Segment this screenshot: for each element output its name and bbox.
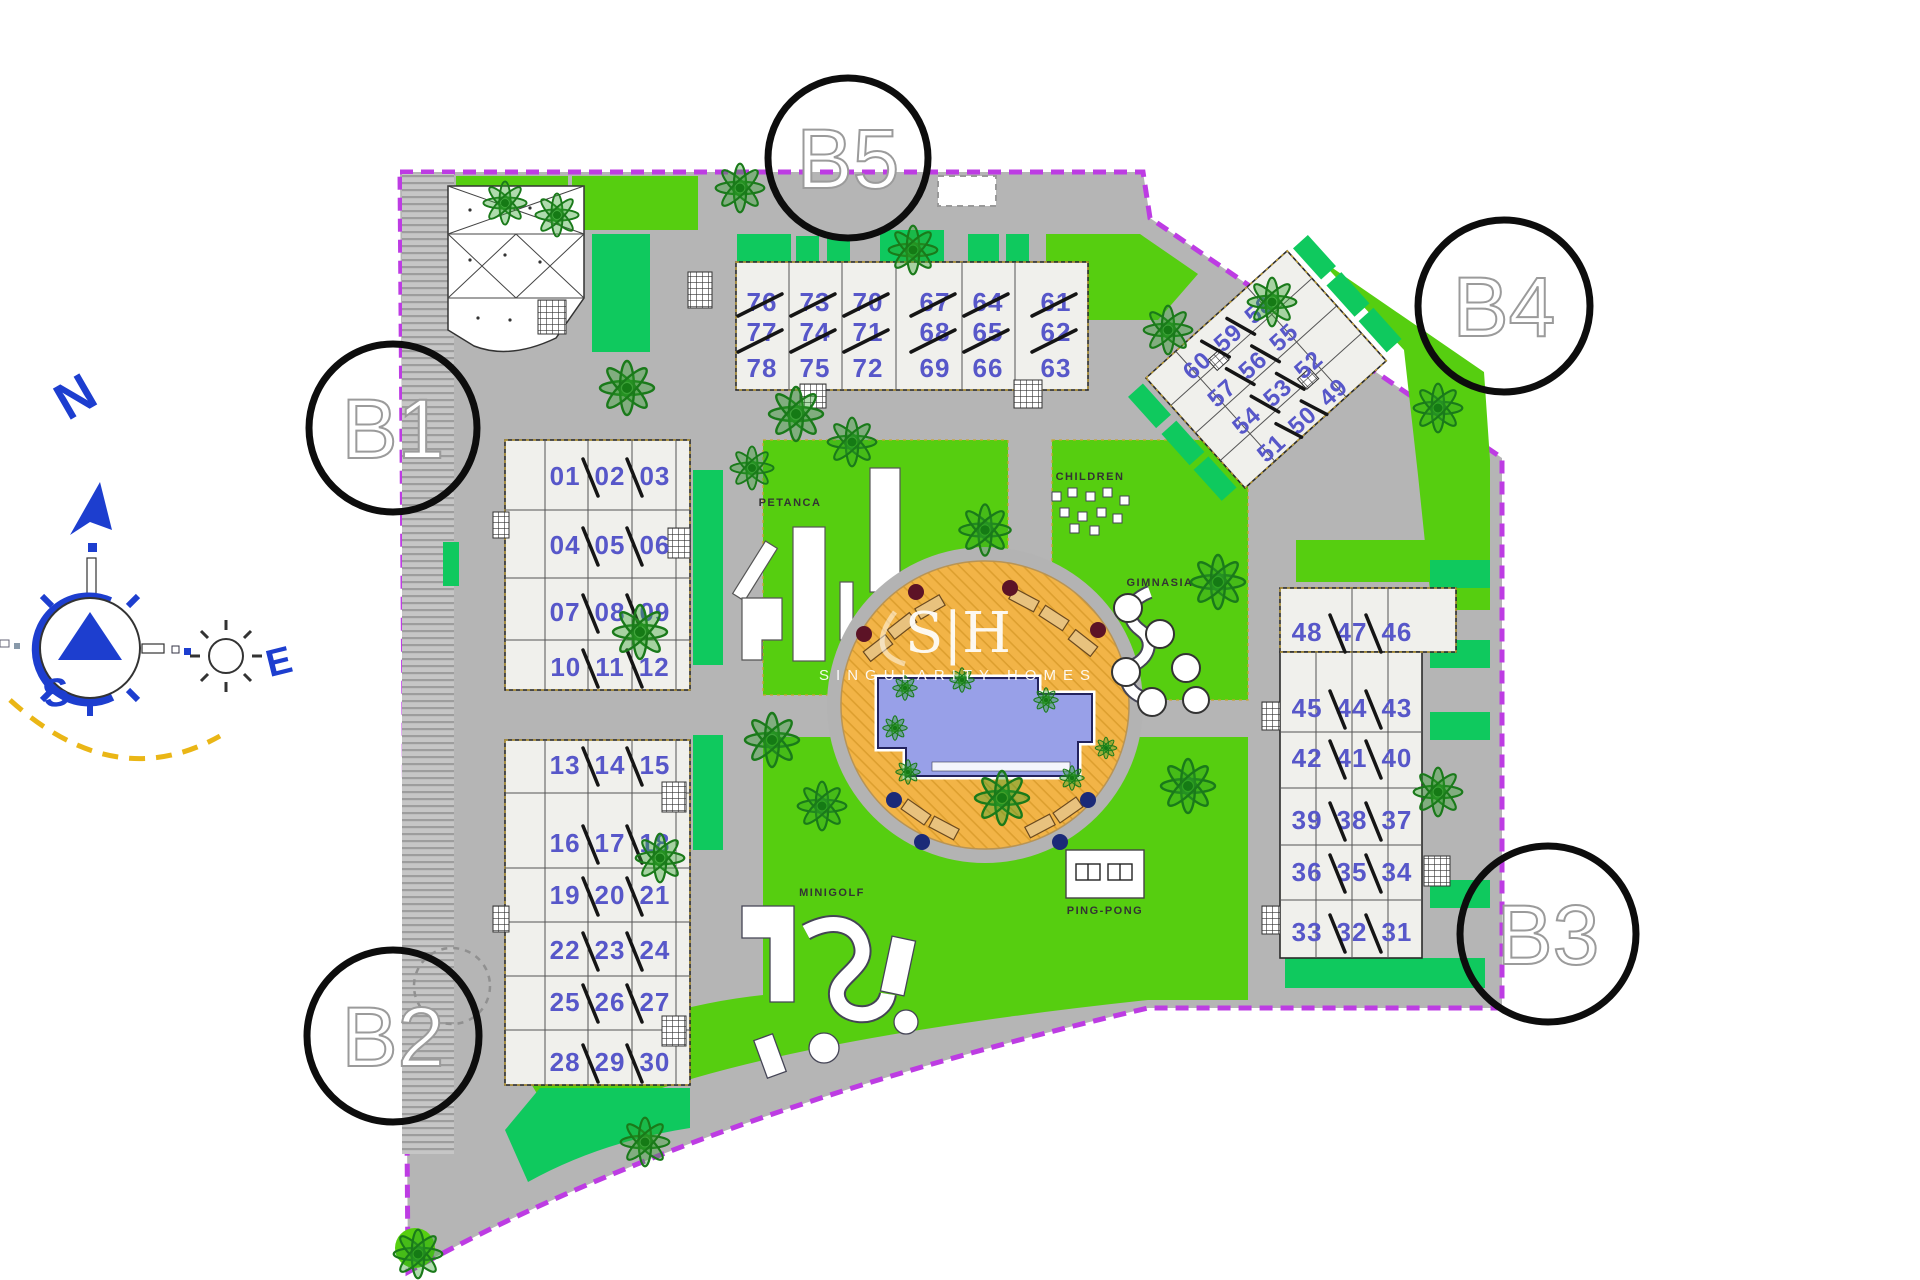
petanca-label: PETANCA xyxy=(759,497,822,509)
compass-arc xyxy=(10,700,220,759)
badge-b1-label: B1 xyxy=(342,382,445,476)
pingpong-label: PING-PONG xyxy=(1067,905,1143,917)
unit-number: 66 xyxy=(973,353,1004,383)
unit-number: 78 xyxy=(747,353,778,383)
unit-row: 45 44 43 xyxy=(1292,693,1413,723)
unit-row: 19 20 21 xyxy=(550,880,671,910)
unit-number: 64 xyxy=(973,287,1004,317)
unit-number: 72 xyxy=(853,353,884,383)
unit-number: 74 xyxy=(800,317,831,347)
unit-number: 63 xyxy=(1041,353,1072,383)
unit-number: 65 xyxy=(973,317,1004,347)
site-plan-svg: 76 77 78 73 74 75 70 71 72 67 68 69 64 6… xyxy=(0,0,1920,1280)
badge-b2-label: B2 xyxy=(342,990,445,1084)
unit-row: 04 05 06 xyxy=(550,530,671,560)
unit-number: 62 xyxy=(1041,317,1072,347)
compass-sun-icon xyxy=(190,620,262,692)
building-b1-lower: 13 14 15 16 17 18 19 20 21 22 23 24 25 2… xyxy=(493,740,690,1085)
minigolf-label: MINIGOLF xyxy=(799,887,865,899)
compass-rose: N E S xyxy=(0,363,296,759)
unit-row: 39 38 37 xyxy=(1292,805,1413,835)
badge-b4-label: B4 xyxy=(1453,260,1556,354)
unit-row: 13 14 15 xyxy=(550,750,671,780)
unit-number: 75 xyxy=(800,353,831,383)
badge-b4: B4 xyxy=(1418,220,1590,392)
unit-number: 70 xyxy=(853,287,884,317)
unit-number: 77 xyxy=(747,317,778,347)
unit-row: 33 32 31 xyxy=(1292,917,1413,947)
unit-row: 22 23 24 xyxy=(550,935,671,965)
building-b1-upper: 01 02 03 04 05 06 07 08 09 10 11 12 xyxy=(493,440,690,690)
badge-b3-label: B3 xyxy=(1497,888,1600,982)
unit-row: 42 41 40 xyxy=(1292,743,1413,773)
compass-north-label: N xyxy=(45,363,107,432)
badge-b5-label: B5 xyxy=(797,112,900,206)
watermark-monogram: S|H xyxy=(905,601,1011,666)
unit-number: 71 xyxy=(853,317,884,347)
watermark-brand: SINGULARITY HOMES xyxy=(819,667,1097,684)
compass-east-label: E xyxy=(262,639,297,686)
unit-row: 01 02 03 xyxy=(550,461,671,491)
unit-row: 36 35 34 xyxy=(1292,857,1413,887)
unit-number: 69 xyxy=(920,353,951,383)
site-plan-canvas: 76 77 78 73 74 75 70 71 72 67 68 69 64 6… xyxy=(0,0,1920,1280)
unit-number: 61 xyxy=(1041,287,1072,317)
unit-row: 28 29 30 xyxy=(550,1047,671,1077)
compass-north-arrow xyxy=(70,482,112,535)
pingpong-area: PING-PONG xyxy=(1066,850,1144,917)
unit-number: 76 xyxy=(747,287,778,317)
unit-row: 25 26 27 xyxy=(550,987,671,1017)
gym-label: GIMNASIA xyxy=(1127,577,1194,589)
unit-number: 68 xyxy=(920,317,951,347)
unit-number: 67 xyxy=(920,287,951,317)
building-b5: 76 77 78 73 74 75 70 71 72 67 68 69 64 6… xyxy=(688,262,1088,408)
unit-row: 48 47 46 xyxy=(1292,617,1413,647)
children-label: CHILDREN xyxy=(1056,471,1125,483)
unit-row: 10 11 12 xyxy=(550,652,669,682)
unit-number: 73 xyxy=(800,287,831,317)
